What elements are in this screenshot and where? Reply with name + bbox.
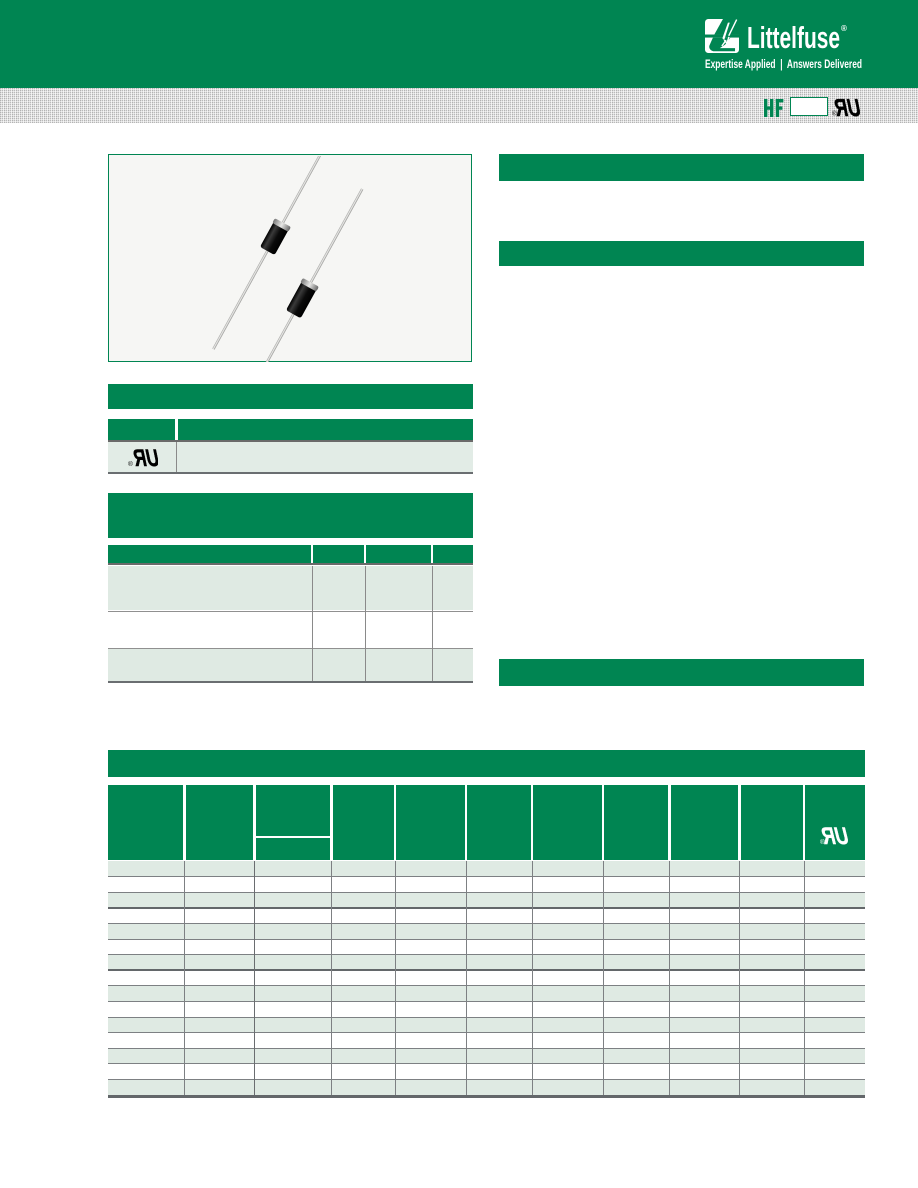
svg-text:®: ® [820, 838, 825, 846]
svg-text:UR: UR [131, 448, 158, 469]
svg-text:®: ® [128, 460, 133, 468]
svg-text:®: ® [841, 24, 847, 33]
svg-text:®: ® [832, 110, 837, 118]
svg-text:Littelfuse: Littelfuse [747, 21, 840, 54]
svg-text:Expertise Applied | Answers: Expertise Applied | Answers Delivered [705, 59, 862, 71]
